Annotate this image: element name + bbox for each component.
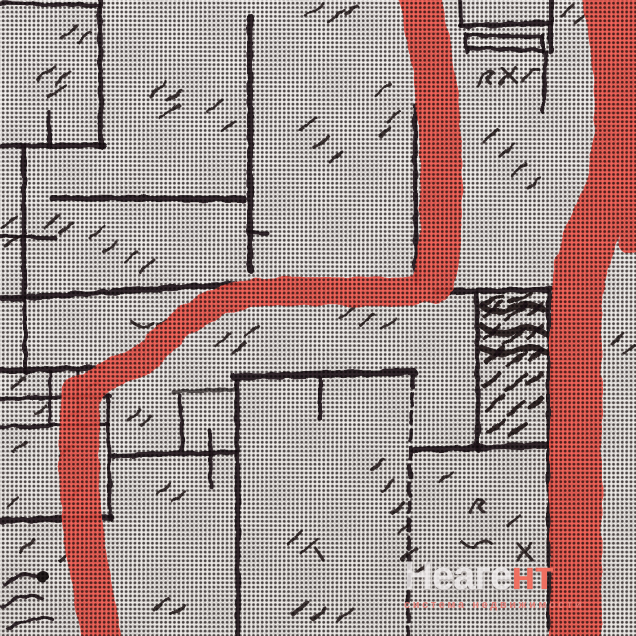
red-marker-stroke-right-edge [629,58,636,244]
photo-art-stack [0,0,636,636]
red-marker-stroke-right [576,0,622,636]
red-marker-layer [0,0,636,636]
red-marker-strokes [79,0,636,636]
floorplan-photo: Неагент система недвижимости [0,0,636,636]
red-marker-stroke-middle-bend [81,268,437,410]
red-marker-stroke-middle-top [417,0,441,282]
red-marker-stroke-middle-bottom [79,394,103,636]
